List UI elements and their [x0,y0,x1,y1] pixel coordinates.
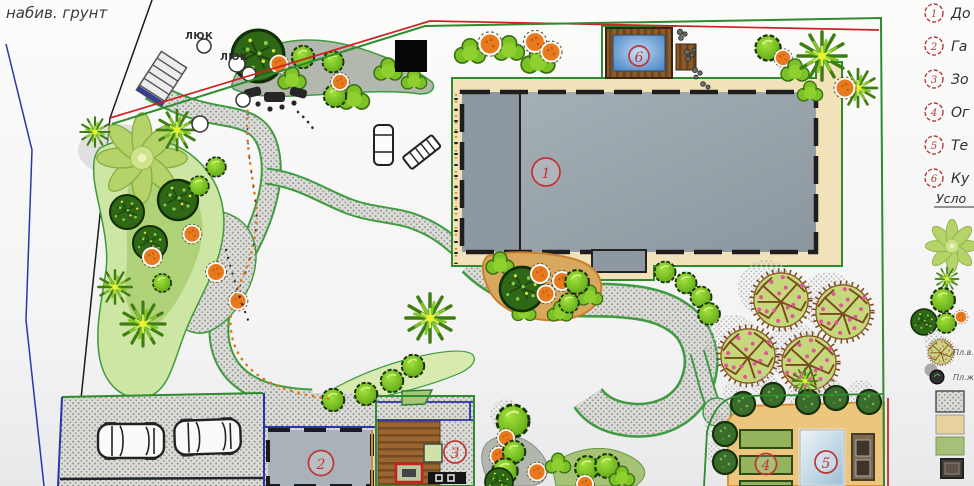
legend-number: 4 [930,108,937,119]
landscape-plan: ЛЮК ЛЮК 1 2 3 4 5 6 набив. грунт 1 До 2 … [0,0,974,486]
car-top-view [174,417,241,457]
house-building [452,62,842,280]
car-top-view [98,422,164,460]
patio-zone [372,390,474,486]
manhole-label: ЛЮК [220,52,248,63]
zone-marker-patio: 3 [444,441,466,463]
svg-text:5: 5 [822,456,831,472]
zone-marker-garden: 4 [756,454,777,475]
manhole-cover [236,93,250,107]
paving-swatch [936,391,964,412]
legend-label: Зо [951,72,969,88]
garden-bed [740,430,792,448]
svg-text:1: 1 [542,166,551,182]
legend-number: 3 [931,75,937,86]
svg-text:3: 3 [451,446,460,462]
plant-label: Пл.ж [953,373,974,382]
legend-symbols-title: Усло [936,191,966,206]
soil-note: набив. грунт [6,4,108,22]
svg-text:6: 6 [635,50,644,66]
svg-text:4: 4 [761,458,771,474]
svg-text:2: 2 [316,457,326,473]
legend-label: Га [951,39,967,55]
landscape-plan-page: ЛЮК ЛЮК 1 2 3 4 5 6 набив. грунт 1 До 2 … [0,0,974,486]
garden-bench [428,472,466,484]
green-tree-icon [936,313,956,333]
lawn-swatch [936,437,964,455]
manhole-cover [192,116,208,132]
garden-bed [740,481,792,486]
legend-number: 2 [930,42,937,53]
manhole-label: ЛЮК [185,31,213,42]
legend-number: 1 [931,9,937,20]
green-tree-icon [931,288,955,312]
legend-label: До [950,6,971,22]
legend-number: 6 [931,174,938,185]
patio-table [424,444,442,462]
parking-area [58,393,264,486]
dark-square-structure [395,40,427,72]
legend-number: 5 [931,141,937,152]
legend-label: Ог [951,105,970,121]
zone-marker-house: 1 [532,158,560,186]
white-vehicle [374,125,393,165]
plant-label: Пл.в. [953,348,974,357]
legend-label: Те [951,138,968,154]
house-porch [592,250,646,272]
zone-marker-greenhouse: 5 [815,451,837,473]
small-plant-icon [930,370,944,384]
sand-swatch [936,415,964,434]
palm-tree-icon [925,219,974,272]
legend-label: Ку [951,171,970,187]
zone-marker-garage: 2 [309,451,334,476]
zone-marker-pool: 6 [629,46,649,66]
